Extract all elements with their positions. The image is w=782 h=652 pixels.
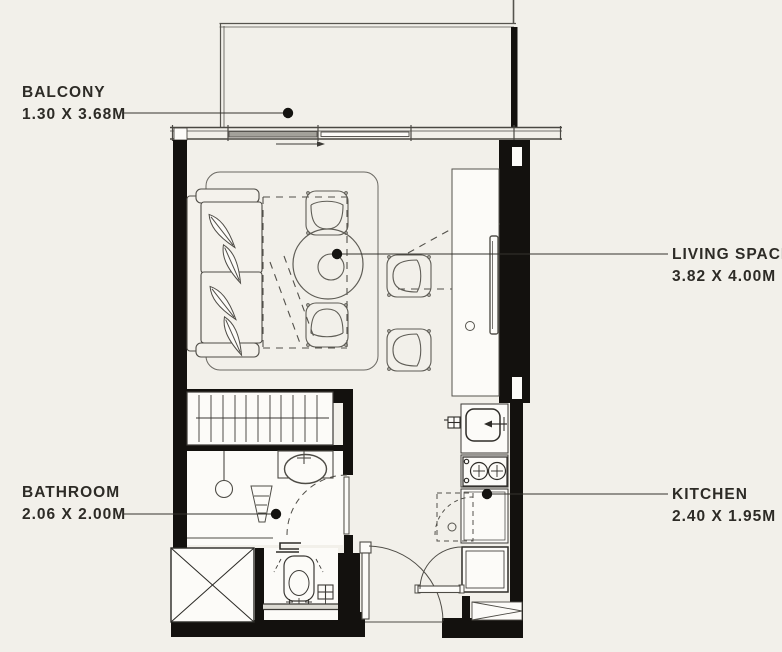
refrigerator — [462, 547, 508, 592]
kitchen-label-dims: 2.40 X 1.95M — [672, 506, 776, 528]
living-space-label-dims: 3.82 X 4.00M — [672, 266, 782, 288]
kitchen-label: KITCHEN 2.40 X 1.95M — [672, 484, 776, 528]
round-table — [293, 229, 363, 299]
balcony-label-name: BALCONY — [22, 82, 126, 104]
bathroom-leader-dot — [271, 509, 281, 519]
kitchen-leader — [482, 489, 668, 499]
wall-switch — [444, 417, 460, 428]
toilet-threshold — [263, 604, 338, 610]
tv-console — [452, 169, 499, 396]
balcony-label: BALCONY 1.30 X 3.68M — [22, 82, 126, 126]
slide-direction-arrow — [276, 141, 325, 147]
balcony-label-dims: 1.30 X 3.68M — [22, 104, 126, 126]
service-shaft — [171, 548, 254, 622]
balcony-side-wall — [511, 27, 518, 128]
kitchen-counter — [461, 404, 508, 543]
shoe-cabinet — [472, 602, 522, 620]
entrance-door-swing — [369, 546, 443, 621]
chair — [387, 329, 431, 371]
chair — [306, 303, 348, 347]
kitchen-label-name: KITCHEN — [672, 484, 776, 506]
tv — [490, 236, 498, 334]
balcony-leader — [122, 108, 293, 118]
living-space-leader-dot — [332, 249, 342, 259]
bathroom-label-name: BATHROOM — [22, 482, 126, 504]
kitchen-door-swing — [420, 547, 462, 589]
bathroom-label-dims: 2.06 X 2.00M — [22, 504, 126, 526]
floor-plan: BALCONY 1.30 X 3.68M LIVING SPACE 3.82 X… — [0, 0, 782, 652]
living-space-label-name: LIVING SPACE — [672, 244, 782, 266]
wardrobe — [187, 392, 333, 445]
dining-chairs — [306, 191, 431, 371]
balcony-railing — [220, 0, 517, 128]
bathroom-label: BATHROOM 2.06 X 2.00M — [22, 482, 126, 526]
chair — [387, 255, 431, 297]
kitchen-leader-dot — [482, 489, 492, 499]
balcony-leader-dot — [283, 108, 293, 118]
living-space-label: LIVING SPACE 3.82 X 4.00M — [672, 244, 782, 288]
balcony-sliding-door — [170, 125, 562, 141]
sofa — [187, 189, 262, 357]
fold-down-bed-outline — [263, 197, 347, 348]
chair — [306, 191, 348, 235]
entrance-door — [360, 542, 443, 622]
